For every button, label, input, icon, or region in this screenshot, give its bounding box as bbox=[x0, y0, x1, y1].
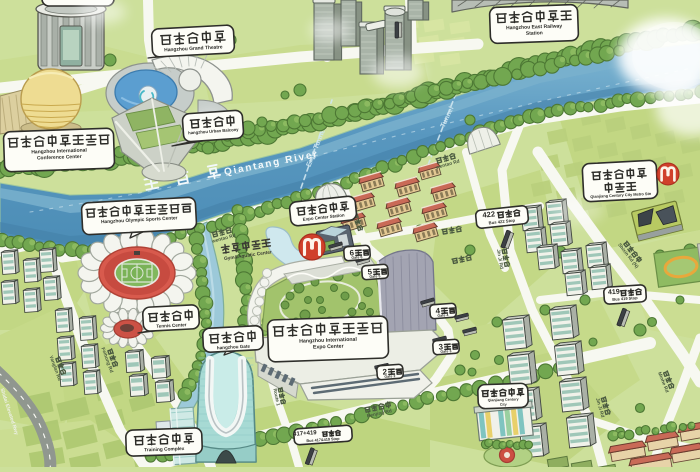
svg-text:419: 419 bbox=[608, 289, 620, 297]
svg-text:Gate 4: Gate 4 bbox=[437, 313, 448, 318]
svg-text:Gate 5: Gate 5 bbox=[369, 274, 380, 279]
svg-text:Station: Station bbox=[526, 30, 543, 37]
svg-text:Gate 2: Gate 2 bbox=[384, 374, 395, 379]
svg-text:422: 422 bbox=[482, 209, 495, 219]
svg-text:City: City bbox=[500, 403, 507, 407]
svg-text:Gate 6: Gate 6 bbox=[351, 255, 362, 260]
svg-text:Gate 3: Gate 3 bbox=[440, 349, 451, 354]
svg-text:Expo Center: Expo Center bbox=[313, 344, 344, 351]
